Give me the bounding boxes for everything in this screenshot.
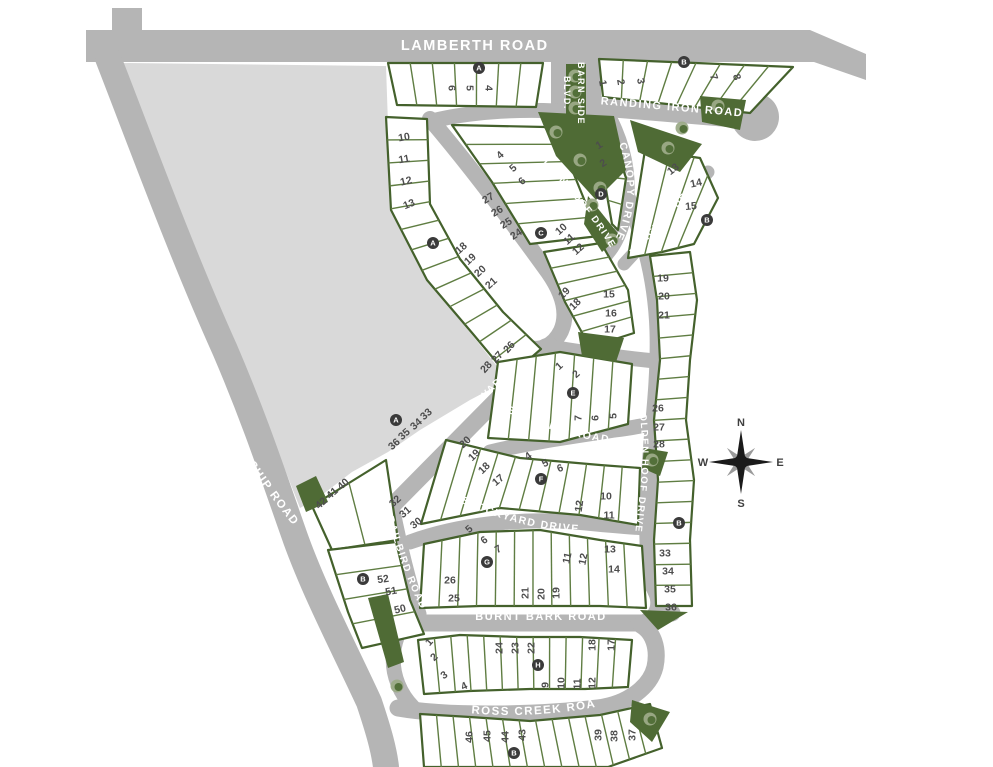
phase-marker: B — [701, 214, 713, 226]
compass-hub — [734, 455, 748, 469]
compass-e: E — [776, 457, 783, 469]
phase-marker: H — [532, 659, 544, 671]
svg-text:B: B — [704, 216, 710, 225]
svg-text:A: A — [430, 239, 436, 248]
lot-number: 4 — [483, 85, 495, 91]
lot-number: 35 — [664, 584, 676, 596]
lot-number: 25 — [448, 593, 460, 605]
svg-text:B: B — [676, 519, 682, 528]
tree-icon — [574, 154, 587, 167]
lot-number: 11 — [603, 510, 614, 522]
svg-text:C: C — [538, 229, 544, 238]
tree-icon — [644, 713, 657, 726]
road-label-lamberth: LAMBERTH ROAD — [401, 38, 549, 54]
lot-number: 10 — [556, 677, 568, 689]
lot-number: 24 — [494, 642, 506, 654]
lot-number: 22 — [526, 642, 538, 654]
svg-text:H: H — [535, 661, 540, 670]
svg-text:E: E — [570, 389, 575, 398]
lot-number: 33 — [659, 548, 671, 560]
lot-number: 11 — [398, 153, 411, 167]
lot-number: 27 — [653, 422, 665, 434]
lot-number: 21 — [658, 310, 670, 322]
tree-icon — [550, 126, 563, 139]
phase-marker: F — [535, 473, 547, 485]
site-plan-map: LAMBERTH ROADFRIENDSHIP ROADBARN SIDEBLV… — [0, 0, 993, 767]
lot-number: 7 — [573, 415, 585, 421]
compass-w: W — [698, 457, 709, 469]
lot-number: 14 — [608, 564, 620, 576]
lot-number: 34 — [662, 566, 674, 578]
phase-marker: C — [535, 227, 547, 239]
phase-marker: B — [508, 747, 520, 759]
svg-text:A: A — [393, 416, 399, 425]
site-plan-svg: LAMBERTH ROADFRIENDSHIP ROADBARN SIDEBLV… — [0, 0, 993, 767]
lot-number: 38 — [609, 730, 621, 742]
lot-number: 12 — [573, 499, 587, 512]
svg-text:B: B — [511, 749, 517, 758]
lot-number: 28 — [653, 439, 665, 451]
lot-number: 43 — [517, 729, 529, 741]
lot-number: 51 — [384, 585, 398, 599]
phase-marker: A — [473, 62, 485, 74]
lot-number: 52 — [376, 573, 389, 587]
lot-number: 15 — [685, 200, 698, 213]
lot-number: 21 — [520, 587, 532, 599]
phase-marker: A — [390, 414, 402, 426]
tree-icon — [391, 680, 404, 693]
phase-marker: B — [673, 517, 685, 529]
lot-number: 6 — [590, 415, 602, 421]
tree-icon — [662, 142, 675, 155]
lot-number: 39 — [593, 729, 605, 741]
lot-number: 16 — [605, 308, 617, 320]
lot-number: 45 — [482, 730, 494, 742]
lot-number: 18 — [587, 639, 599, 651]
compass-s: S — [737, 498, 744, 510]
phase-marker: B — [678, 56, 690, 68]
road-label-barnside: BARN SIDE — [576, 62, 586, 125]
lot-number: 20 — [658, 291, 670, 303]
lot-number: 20 — [536, 588, 548, 600]
lot-line — [654, 543, 690, 544]
lot-number: 23 — [510, 642, 522, 654]
phase-marker: G — [481, 556, 493, 568]
lot-number: 19 — [551, 587, 563, 599]
lot-number: 19 — [657, 273, 669, 285]
lot-number: 15 — [603, 289, 615, 301]
lot-number: 36 — [665, 602, 677, 614]
lot-number: 37 — [627, 729, 639, 741]
lot-number: 10 — [600, 491, 612, 503]
phase-marker: B — [357, 573, 369, 585]
lot-number: 44 — [500, 731, 512, 743]
svg-text:B: B — [681, 58, 687, 67]
svg-text:G: G — [484, 558, 490, 567]
lot-number: 10 — [397, 131, 411, 145]
phase-marker: D — [595, 188, 607, 200]
svg-text:A: A — [476, 64, 482, 73]
svg-text:B: B — [360, 575, 366, 584]
lot-number: 26 — [444, 575, 456, 587]
lot-number: 11 — [572, 678, 584, 689]
tree-icon — [676, 122, 689, 135]
phase-marker: E — [567, 387, 579, 399]
phase-marker: A — [427, 237, 439, 249]
road-trailside-connector — [432, 110, 556, 121]
road-label-burntbark: BURNT BARK ROAD — [475, 611, 606, 623]
lot-number: 12 — [587, 677, 599, 689]
lot-number: 5 — [608, 413, 620, 419]
lot-number: 5 — [464, 85, 476, 91]
lot-number: 17 — [604, 324, 616, 336]
lot-number: 46 — [464, 731, 476, 743]
compass-rose: N E S W — [698, 417, 784, 510]
svg-text:F: F — [539, 475, 544, 484]
lot-number: 9 — [540, 682, 552, 688]
lot-number: 13 — [604, 544, 616, 556]
lot-number: 26 — [652, 403, 664, 415]
road-label-barnside: BLVD. — [562, 76, 572, 110]
lot-number: 6 — [446, 85, 458, 91]
svg-text:D: D — [598, 190, 604, 199]
lot-number: 17 — [606, 639, 618, 651]
compass-n: N — [737, 417, 745, 429]
